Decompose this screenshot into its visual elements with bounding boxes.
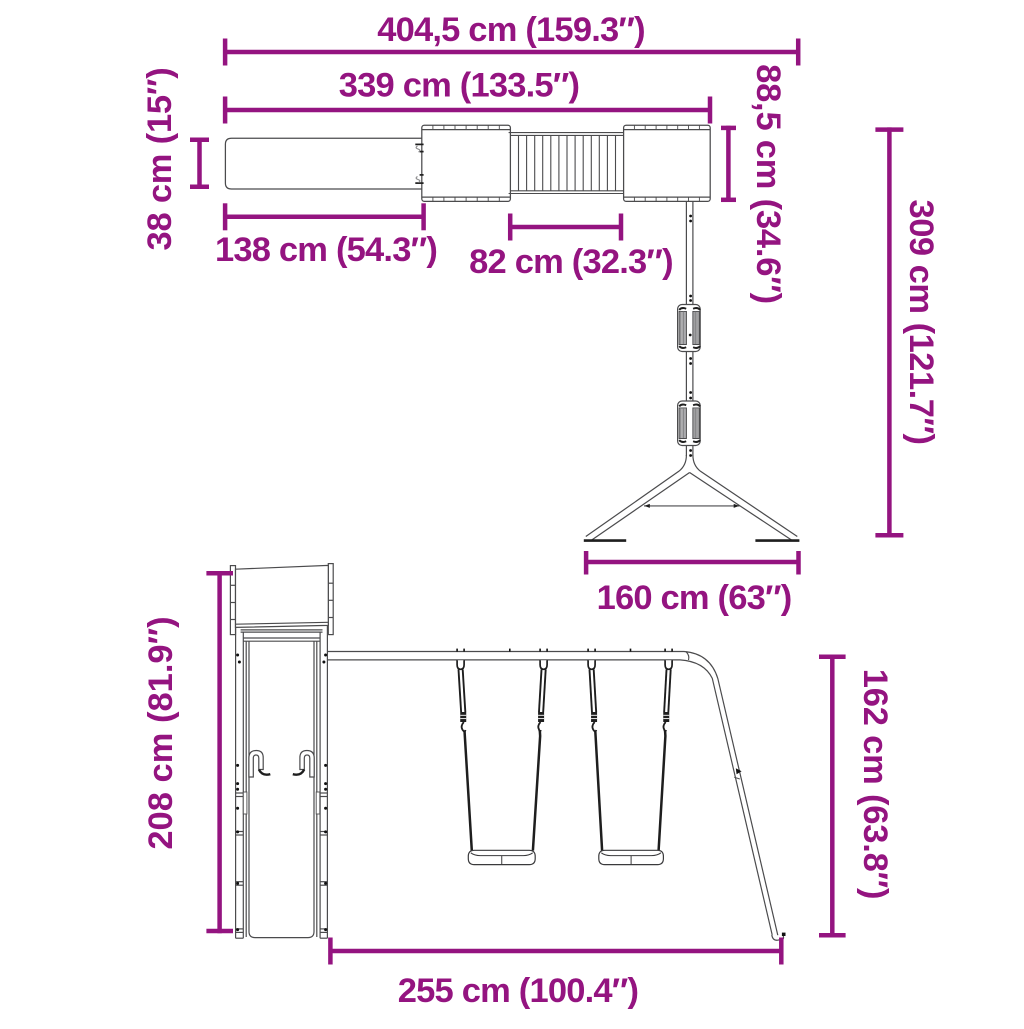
svg-text:138 cm (54.3″): 138 cm (54.3″) — [215, 231, 437, 269]
svg-text:255 cm (100.4″): 255 cm (100.4″) — [398, 972, 638, 1010]
svg-text:38 cm (15″): 38 cm (15″) — [141, 67, 179, 250]
svg-text:160 cm (63″): 160 cm (63″) — [597, 579, 792, 617]
svg-text:88,5 cm (34.6″): 88,5 cm (34.6″) — [749, 64, 787, 304]
svg-text:404,5 cm (159.3″): 404,5 cm (159.3″) — [377, 11, 645, 49]
svg-text:82 cm (32.3″): 82 cm (32.3″) — [469, 243, 673, 281]
svg-text:208 cm (81.9″): 208 cm (81.9″) — [142, 616, 180, 849]
svg-text:339 cm (133.5″): 339 cm (133.5″) — [339, 67, 579, 105]
svg-text:309 cm (121.7″): 309 cm (121.7″) — [902, 200, 940, 445]
svg-text:162 cm (63.8″): 162 cm (63.8″) — [856, 669, 894, 899]
